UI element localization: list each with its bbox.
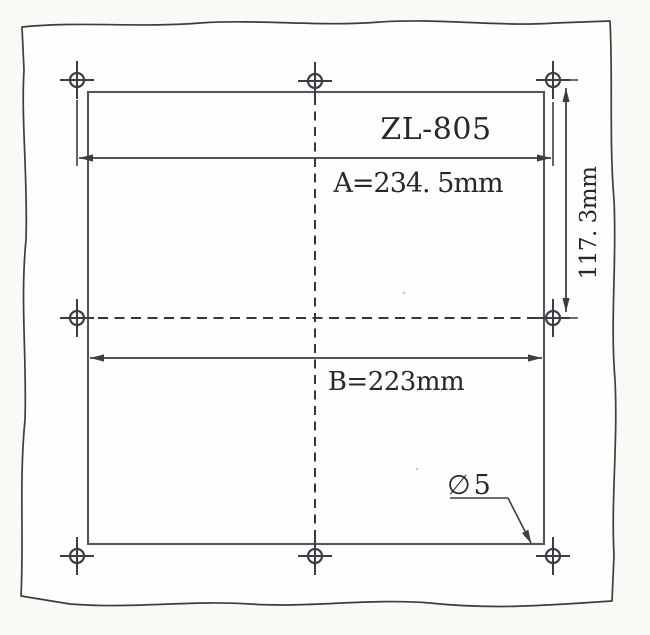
scan-speck	[416, 468, 419, 471]
scan-speck	[403, 292, 406, 295]
dimension-vertical-label: 117. 3mm	[576, 166, 602, 279]
torn-paper-border	[21, 21, 616, 607]
hole-diameter-label: ∅5	[447, 470, 491, 501]
dimension-a-label: A=234. 5mm	[332, 168, 503, 199]
model-label: ZL-805	[380, 112, 491, 147]
panel-cutout-drawing: A=234. 5mm ZL-805 B=223mm 117. 3mm ∅5	[0, 0, 650, 635]
diameter-value: 5	[474, 470, 491, 501]
diameter-symbol: ∅	[447, 470, 471, 501]
dimension-b-label: B=223mm	[328, 367, 464, 397]
